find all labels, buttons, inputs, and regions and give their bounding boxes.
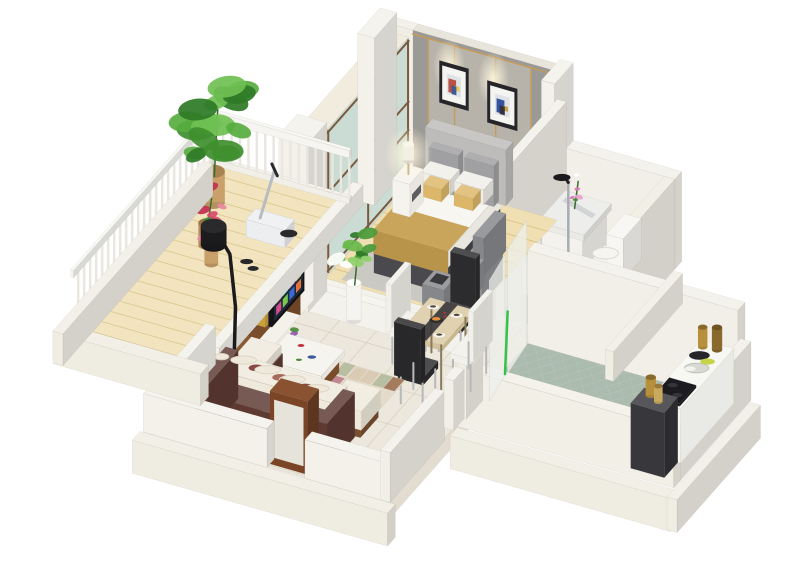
wall-east-stub: [444, 366, 464, 430]
floorplan-stage: [0, 0, 800, 573]
apartment-3d-floorplan: [0, 0, 800, 573]
art-frame-1: [439, 60, 468, 111]
toilet-bowl: [593, 247, 619, 259]
elliptical-wheel: [280, 230, 297, 238]
pot-black: [689, 351, 710, 360]
brass-jar-4: [654, 384, 663, 404]
lamp-shade: [403, 141, 414, 163]
brass-jar-1: [698, 324, 707, 349]
lime-bowl: [700, 358, 715, 364]
dining-chair-south-back: [394, 317, 425, 383]
flower-vase: [346, 279, 361, 324]
shower-head: [553, 174, 570, 181]
dining-chair-north-back: [450, 247, 479, 312]
white-bowl: [685, 366, 696, 371]
brass-jar-2: [712, 325, 722, 353]
arc-lamp-shade: [201, 219, 227, 252]
art-frame-2: [487, 80, 517, 131]
pillar-north: [358, 8, 397, 206]
dumbbell-2: [248, 266, 259, 271]
dumbbell-1: [240, 259, 253, 264]
front-cabinet-panel: [274, 400, 303, 467]
